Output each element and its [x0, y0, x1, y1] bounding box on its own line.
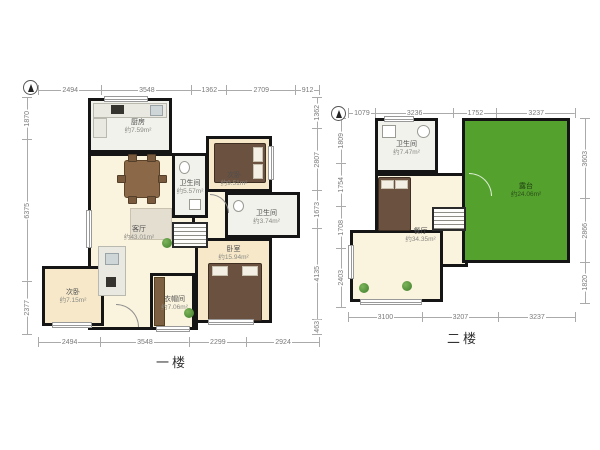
floor1-bottom-dimensions: 2494354822992924 [38, 337, 320, 347]
room-bathroom: 卫生间 约7.47m² [375, 118, 438, 173]
island-sink-icon [105, 253, 119, 265]
floor2-label: 二楼 [352, 328, 574, 347]
dimension-segment: 3207 [422, 312, 498, 322]
window [52, 322, 92, 328]
window [156, 326, 190, 332]
plant-icon [359, 283, 369, 293]
chair [128, 154, 137, 162]
pillow [212, 266, 228, 276]
plant-icon [402, 281, 412, 291]
dimension-segment: 4135 [312, 228, 322, 319]
room-bedroom-2: 次卧 约9.51m² [206, 136, 272, 192]
shower-icon [417, 125, 430, 138]
dimension-segment: 3100 [348, 312, 422, 322]
dimension-value: 1708 [338, 219, 345, 237]
dimension-segment: 1708 [336, 206, 346, 248]
dimension-segment: 2709 [226, 85, 295, 95]
dimension-value: 2494 [61, 339, 79, 346]
room-master-label: 卧室 约15.94m² [198, 246, 269, 262]
island-stove-icon [106, 277, 116, 287]
room-kitchen: 厨房 约7.59m² [88, 98, 172, 153]
dimension-segment: 3548 [100, 337, 188, 347]
dimension-value: 4135 [314, 265, 321, 283]
room-terrace: 露台 约24.06m² [462, 118, 570, 263]
terrace-door-arc [469, 173, 492, 196]
rug [130, 208, 172, 240]
toilet-icon [179, 161, 190, 174]
floorplan-canvas: 2494354813622709912 2494354822992924 187… [0, 0, 600, 450]
dimension-segment: 2377 [22, 281, 32, 335]
dimension-value: 3603 [582, 150, 589, 168]
dimension-segment: 1820 [580, 262, 590, 304]
chair [147, 196, 156, 204]
chair [158, 175, 167, 183]
floor1-right-dimensions: 1362280716734135463 [312, 97, 322, 335]
wardrobe [154, 277, 165, 326]
dimension-value: 3548 [136, 339, 154, 346]
toilet-icon [233, 200, 244, 212]
room-bedroom-3: 次卧 约7.15m² [42, 266, 104, 326]
window [268, 146, 274, 180]
north-compass-icon [331, 106, 346, 121]
room-terrace-label: 露台 约24.06m² [485, 183, 567, 199]
window [384, 116, 414, 122]
dimension-value: 463 [314, 320, 321, 334]
compass-needle-icon [336, 110, 342, 118]
dimension-value: 2709 [252, 87, 270, 94]
stove-icon [111, 105, 124, 114]
dining-table [124, 160, 160, 198]
dimension-segment: 1754 [336, 163, 346, 206]
dimension-segment: 2494 [38, 85, 101, 95]
dimension-value: 1673 [314, 201, 321, 219]
north-compass-icon [23, 80, 38, 95]
window [348, 245, 354, 279]
room-master-bedroom: 卧室 约15.94m² [195, 238, 272, 323]
floor1-left-dimensions: 187063752377 [22, 97, 32, 335]
dimension-value: 1820 [582, 274, 589, 292]
dimension-value: 2403 [338, 269, 345, 287]
dimension-value: 1754 [338, 176, 345, 194]
washbasin-icon [189, 199, 201, 210]
kitchen-island [98, 246, 126, 296]
stairs-icon [432, 207, 466, 231]
dimension-segment: 1870 [22, 97, 32, 139]
sink-icon [150, 105, 163, 116]
dimension-value: 3207 [452, 314, 470, 321]
dimension-segment: 3548 [101, 85, 191, 95]
dimension-segment: 1673 [312, 190, 322, 228]
dimension-value: 2299 [209, 339, 227, 346]
dimension-segment: 2403 [336, 248, 346, 308]
dimension-value: 1362 [201, 87, 219, 94]
room-kitchen-label: 厨房 约7.59m² [107, 119, 169, 135]
room-bathroom-2: 卫生间 约3.74m² [225, 192, 300, 238]
floor2-bottom-dimensions: 310032073237 [348, 312, 576, 322]
dimension-value: 1870 [24, 110, 31, 128]
pillow [395, 180, 408, 189]
window [208, 319, 254, 325]
compass-needle-icon [28, 84, 34, 92]
room-bathroom-label: 卫生间 约7.47m² [378, 141, 435, 157]
dimension-segment: 912 [295, 85, 320, 95]
floor1-top-dimensions: 2494354813622709912 [38, 85, 320, 95]
washer-icon [382, 125, 396, 138]
dimension-value: 2924 [274, 339, 292, 346]
stairs-icon [172, 222, 208, 248]
floor1-label: 一楼 [72, 352, 272, 371]
chair [128, 196, 137, 204]
window [104, 96, 148, 102]
room-bathroom2-label: 卫生间 约3.74m² [236, 210, 297, 226]
dimension-segment: 2866 [580, 198, 590, 262]
dimension-segment: 6375 [22, 139, 32, 280]
dimension-segment: 463 [312, 319, 322, 335]
bed [214, 143, 266, 183]
dimension-segment: 2924 [246, 337, 320, 347]
chair [147, 154, 156, 162]
floor1-plan: 客厅 约43.01m² 厨房 约7.59m² 卫生间 约5.57m² [42, 98, 304, 334]
dimension-value: 2377 [24, 299, 31, 317]
dimension-segment: 1809 [336, 118, 346, 163]
room-bathroom-1: 卫生间 约5.57m² [172, 153, 208, 218]
dimension-value: 2494 [61, 87, 79, 94]
dimension-value: 912 [301, 87, 315, 94]
dimension-value: 2807 [314, 151, 321, 169]
plant-icon [184, 308, 194, 318]
pillow [242, 266, 258, 276]
fridge-icon [93, 118, 107, 138]
dimension-segment: 1362 [191, 85, 226, 95]
floor2-left-dimensions: 1809175417082403 [336, 118, 346, 308]
bed [208, 263, 262, 321]
room-cloakroom: 衣帽间 约7.06m² [150, 273, 195, 330]
pillow [381, 180, 394, 189]
chair [117, 175, 126, 183]
dimension-value: 3548 [138, 87, 156, 94]
dimension-value: 3100 [377, 314, 395, 321]
plant-icon [162, 238, 172, 248]
window [360, 299, 422, 305]
dimension-value: 1809 [338, 132, 345, 150]
dimension-segment: 1362 [312, 97, 322, 128]
dimension-segment: 2807 [312, 128, 322, 190]
bed [378, 177, 411, 231]
room-bedroom3-label: 次卧 约7.15m² [45, 289, 101, 305]
dimension-segment: 2494 [38, 337, 100, 347]
pillow [253, 164, 263, 179]
dimension-value: 3237 [528, 314, 546, 321]
dimension-value: 6375 [24, 202, 31, 220]
floor2-plan: 餐厅 约34.35m² 卫生间 约7.47m² 露台 约24.06m² [350, 115, 576, 307]
dimension-segment: 3237 [498, 312, 576, 322]
room-bathroom1-label: 卫生间 约5.57m² [175, 180, 205, 196]
window [86, 210, 92, 248]
dimension-value: 1362 [314, 104, 321, 122]
pillow [253, 147, 263, 162]
dimension-value: 2866 [582, 222, 589, 240]
dimension-segment: 2299 [189, 337, 247, 347]
floor2-right-dimensions: 360328661820 [580, 118, 590, 304]
dimension-segment: 3603 [580, 118, 590, 198]
